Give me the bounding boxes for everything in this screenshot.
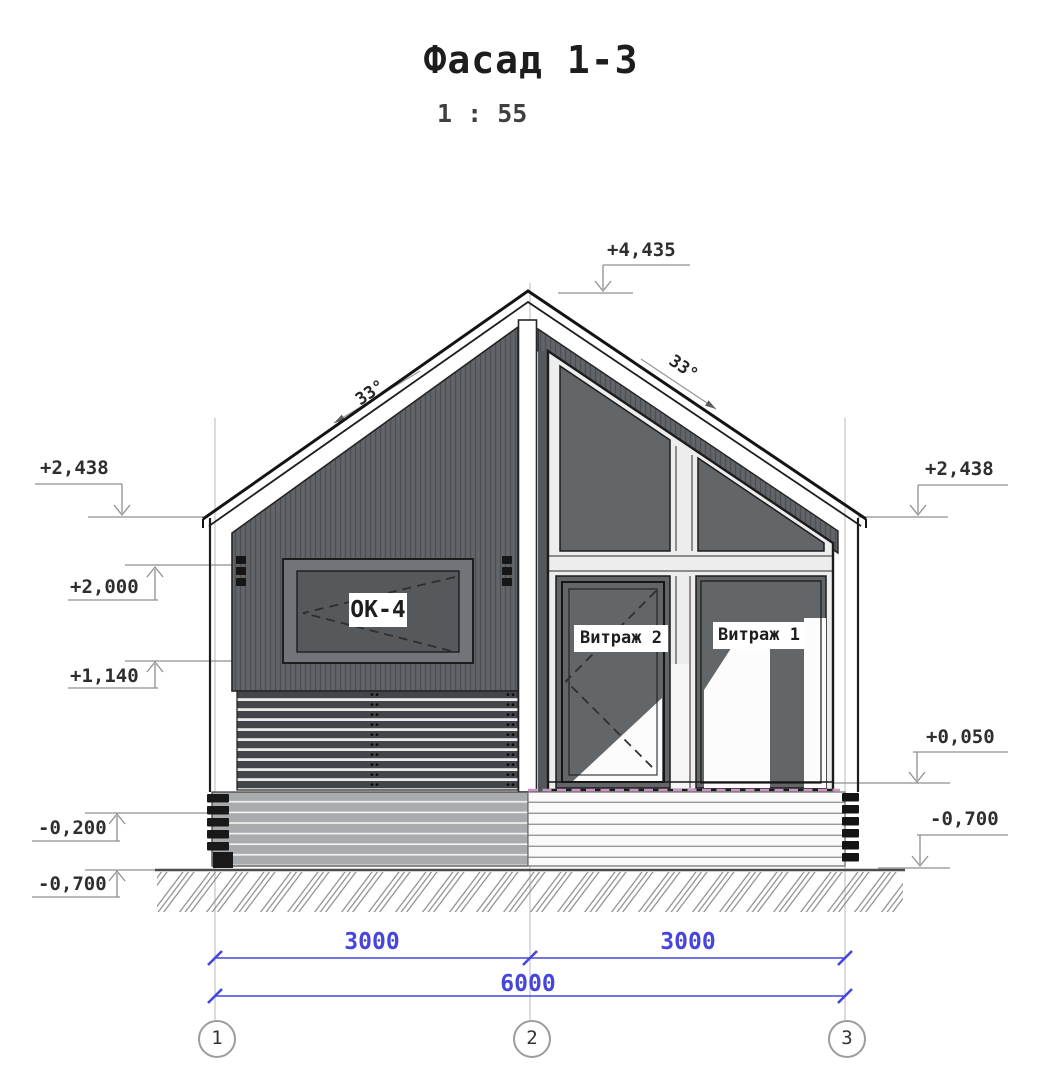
vitrage-1-label: Витраж 1 — [713, 622, 805, 649]
vitrage-pane-upper-right — [698, 458, 824, 551]
elevation-terrace: +0,050 — [926, 726, 995, 748]
ground — [155, 870, 905, 912]
plinth-left — [212, 792, 528, 866]
facade-svg — [0, 0, 1054, 1080]
dimension-bay-2-3: 3000 — [656, 929, 720, 955]
corner-trim — [538, 351, 548, 792]
elevation-ground-right: -0,700 — [930, 808, 999, 830]
vitrage-2-label: Витраж 2 — [574, 625, 668, 652]
page-title: Фасад 1-3 — [420, 38, 642, 82]
house — [203, 291, 866, 868]
elevation-ground-left: -0,700 — [38, 873, 107, 895]
elevation-ridge: +4,435 — [607, 239, 676, 261]
center-corner-board — [519, 320, 537, 792]
slat-band — [237, 691, 518, 790]
grid-axis-bubble-3: 3 — [828, 1020, 866, 1058]
elevation-window-sill: +1,140 — [70, 665, 139, 687]
elevation-plinth: -0,200 — [38, 817, 107, 839]
facade-drawing-sheet: Фасад 1-3 1 : 55 +4,435 +2,438 +2,438 +2… — [0, 0, 1054, 1080]
reflection — [671, 664, 689, 788]
grid-axis-bubble-1: 1 — [198, 1020, 236, 1058]
drawing-scale: 1 : 55 — [437, 99, 527, 128]
reflection — [804, 618, 826, 788]
window-ok4-label: ОК-4 — [349, 593, 407, 627]
plinth-right — [528, 792, 845, 866]
grid-axis-bubble-2: 2 — [513, 1020, 551, 1058]
elevation-eave-right: +2,438 — [925, 458, 994, 480]
dimension-bay-1-2: 3000 — [340, 929, 404, 955]
elevation-eave-left: +2,438 — [40, 457, 109, 479]
dimension-overall: 6000 — [496, 971, 560, 997]
elevation-window-head: +2,000 — [70, 576, 139, 598]
